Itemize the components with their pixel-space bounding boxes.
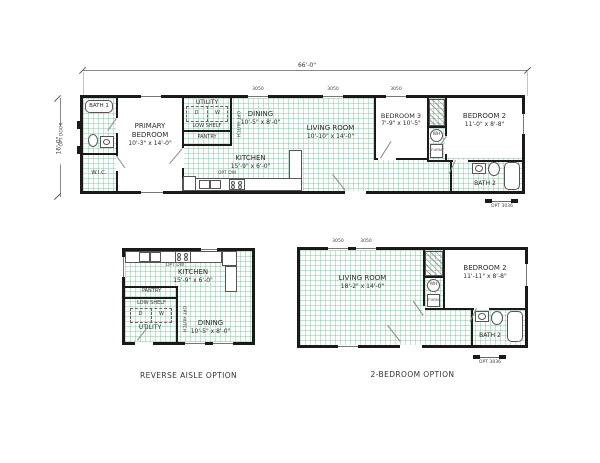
fridge-icon <box>183 176 196 191</box>
closet-hatch <box>429 99 445 126</box>
room-label-bedroom2: BEDROOM 211'-11" x 8'-8" <box>447 264 523 280</box>
door-opening <box>182 148 184 168</box>
window-size-label: 3050 <box>351 240 381 245</box>
wall <box>427 126 447 128</box>
fridge-icon <box>222 251 237 266</box>
window-icon <box>185 342 205 345</box>
room-label-living: LIVING ROOM10'-10" x 14'-0" <box>288 124 373 140</box>
floor-plan-canvas: 66'-0" 16'-0" OPT DOOR <box>0 0 600 463</box>
room-label-wic: W.I.C. <box>85 170 113 177</box>
reverse-aisle-plan: OPT DW PANTRY LOW SHELF D W OPT HUTCH KI… <box>122 248 255 345</box>
room-size: 11'-0" x 8'-8" <box>447 121 522 129</box>
room-name: KITCHEN <box>218 154 283 163</box>
room-name: LIVING ROOM <box>320 274 405 283</box>
kitchen-peninsula <box>225 266 237 292</box>
room-name: BEDROOM 2 <box>447 112 522 121</box>
door-opening <box>345 191 366 194</box>
window-icon <box>201 248 217 251</box>
burner-icon <box>231 185 235 189</box>
window-icon <box>141 191 163 194</box>
window-icon <box>525 264 528 286</box>
opt-window-end <box>485 199 492 203</box>
room-name: BEDROOM 3 <box>375 112 427 120</box>
tub-icon <box>507 311 523 342</box>
room-label-bedroom2: BEDROOM 211'-0" x 8'-8" <box>447 112 522 128</box>
room-name: DINING <box>183 319 238 328</box>
opt-window-label: OPT 3036 <box>470 361 510 366</box>
wall <box>423 308 445 310</box>
opt-window-end <box>473 355 480 359</box>
room-label-utility: UTILITY <box>125 324 175 332</box>
room-name: BATH 2 <box>472 332 508 340</box>
room-name: DINING <box>233 110 288 119</box>
furnace-label: FURN <box>425 298 442 302</box>
room-size: 10'-3" x 14'-0" <box>119 140 181 148</box>
burner-icon <box>177 257 181 261</box>
wall <box>427 160 447 162</box>
room-size: 15'-9" x 6'-0" <box>163 277 223 285</box>
toilet-icon <box>488 162 500 176</box>
room-label-bath1: BATH 1 <box>85 103 113 110</box>
room-label-bath2: BATH 2 <box>465 180 505 188</box>
room-name: BEDROOM 2 <box>447 264 523 273</box>
window-icon <box>338 345 358 348</box>
sink-icon <box>199 180 210 189</box>
room-name: UTILITY <box>125 324 175 332</box>
wall <box>182 144 232 146</box>
room-floor-bedroom3 <box>376 98 427 158</box>
tub-icon <box>504 162 520 190</box>
room-label-bath2: BATH 2 <box>472 332 508 340</box>
room-label-bedroom3: BEDROOM 37'-9" x 10'-5" <box>375 112 427 128</box>
window-size-label: 3050 <box>323 240 353 245</box>
room-name: KITCHEN <box>163 268 223 277</box>
room-label-kitchen: KITCHEN15'-9" x 6'-0" <box>163 268 223 284</box>
window-icon <box>122 257 125 277</box>
washer-label: W <box>151 312 172 318</box>
main-floor-plan: 3050 3050 3050 D W LOW SHELF PANTRY OPT … <box>80 95 525 194</box>
low-shelf-label: LOW SHELF <box>182 124 232 130</box>
window-icon <box>213 342 233 345</box>
opt-window-label: OPT 3036 <box>482 205 522 210</box>
room-name: PRIMARY BEDROOM <box>119 122 181 140</box>
room-label-living: LIVING ROOM18'-2" x 14'-0" <box>320 274 405 290</box>
room-size: 7'-9" x 10'-5" <box>375 120 427 128</box>
window-icon <box>386 95 406 98</box>
room-name: UTILITY <box>182 99 232 107</box>
door-opening <box>116 118 118 133</box>
sink-bowl-icon <box>103 139 110 145</box>
room-label-kitchen: KITCHEN15'-9" x 6'-0" <box>218 154 283 170</box>
window-icon <box>248 95 268 98</box>
kitchen-peninsula <box>289 150 302 179</box>
wall <box>374 98 376 160</box>
room-label-utility: UTILITY <box>182 99 232 107</box>
room-label-dining: DINING10'-5" x 8'-0" <box>183 319 238 335</box>
pantry-label: PANTRY <box>182 135 232 141</box>
window-icon <box>141 95 161 98</box>
extension-line <box>527 72 528 96</box>
closet-hatch <box>425 251 443 276</box>
window-icon <box>356 247 376 250</box>
opt-dw-label: OPT DW <box>215 172 239 177</box>
room-size: 10'-10" x 14'-0" <box>288 133 373 141</box>
wall <box>423 276 445 278</box>
window-size-label: 3050 <box>381 88 411 93</box>
opt-window-end <box>511 199 518 203</box>
dryer-label: D <box>186 111 207 117</box>
room-name: BATH 2 <box>465 180 505 188</box>
wall <box>182 130 232 132</box>
door-opening <box>400 345 422 348</box>
sink-bowl-icon <box>475 165 483 172</box>
water-heater-label: WH <box>430 133 443 138</box>
window-icon <box>328 247 348 250</box>
window-icon <box>323 95 343 98</box>
wall <box>443 250 445 310</box>
sink-icon <box>139 252 150 262</box>
room-name: BATH 1 <box>85 103 113 110</box>
room-label-dining: DINING10'-5" x 8'-0" <box>233 110 288 126</box>
room-size: 11'-11" x 8'-8" <box>447 273 523 281</box>
dimension-label-width: 66'-0" <box>282 62 332 69</box>
room-name: LIVING ROOM <box>288 124 373 133</box>
water-heater-label: WH <box>427 283 440 288</box>
room-size: 10'-5" x 8'-0" <box>233 119 288 127</box>
plan-caption-twobed: 2-BEDROOM OPTION <box>297 370 528 379</box>
toilet-icon <box>88 134 98 147</box>
window-size-label: 3050 <box>243 88 273 93</box>
opt-window-end <box>499 355 506 359</box>
washer-label: W <box>207 111 228 117</box>
wall <box>125 297 178 299</box>
toilet-icon <box>491 311 503 325</box>
room-size: 10'-5" x 8'-0" <box>183 328 238 336</box>
burner-icon <box>184 257 188 261</box>
wall <box>83 153 116 155</box>
room-size: 18'-2" x 14'-0" <box>320 283 405 291</box>
plan-caption-reverse: REVERSE AISLE OPTION <box>122 371 255 380</box>
window-size-label: 3050 <box>318 88 348 93</box>
wall <box>116 98 118 191</box>
pantry-label: PANTRY <box>125 289 178 295</box>
opt-door-label: OPT DOOR <box>61 121 66 147</box>
sink-icon <box>150 252 161 262</box>
two-bedroom-plan: WH FURN 3050 3050 LIVING ROOM18'-2" x 14… <box>297 247 528 348</box>
window-icon <box>522 114 525 134</box>
sink-icon <box>210 180 221 189</box>
extension-line <box>83 72 84 96</box>
room-size: 15'-9" x 6'-0" <box>218 163 283 171</box>
low-shelf-label: LOW SHELF <box>125 301 178 307</box>
furnace-label: FURN <box>428 148 445 152</box>
room-name: W.I.C. <box>85 170 113 177</box>
sink-bowl-icon <box>478 313 486 320</box>
door-opening <box>135 342 153 345</box>
dryer-label: D <box>130 312 151 318</box>
burner-icon <box>238 185 242 189</box>
dimension-line-width <box>83 70 528 71</box>
room-label-primary-bedroom: PRIMARY BEDROOM10'-3" x 14'-0" <box>119 122 181 147</box>
